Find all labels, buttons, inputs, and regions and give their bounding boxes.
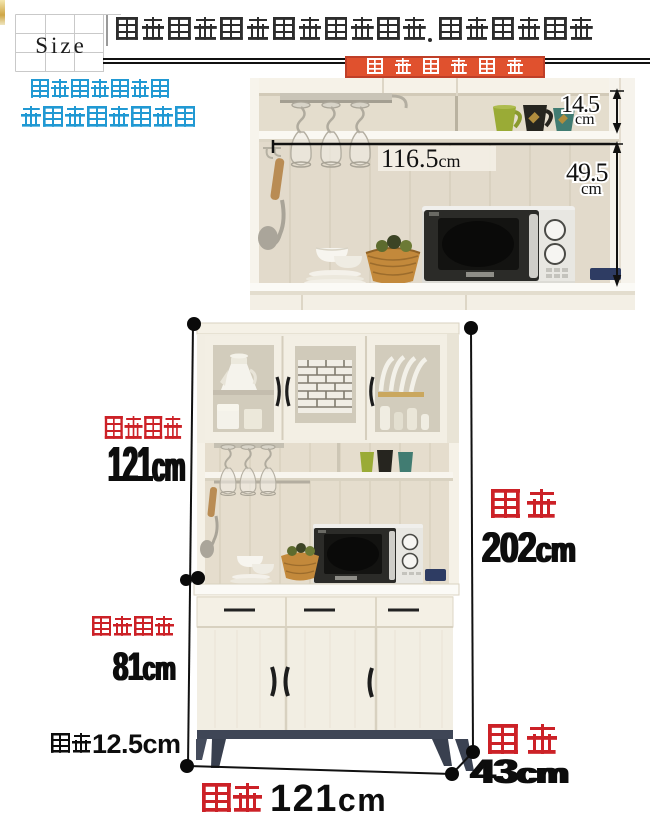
svg-text:cm: cm [575,111,595,128]
svg-text:cm: cm [581,179,602,198]
